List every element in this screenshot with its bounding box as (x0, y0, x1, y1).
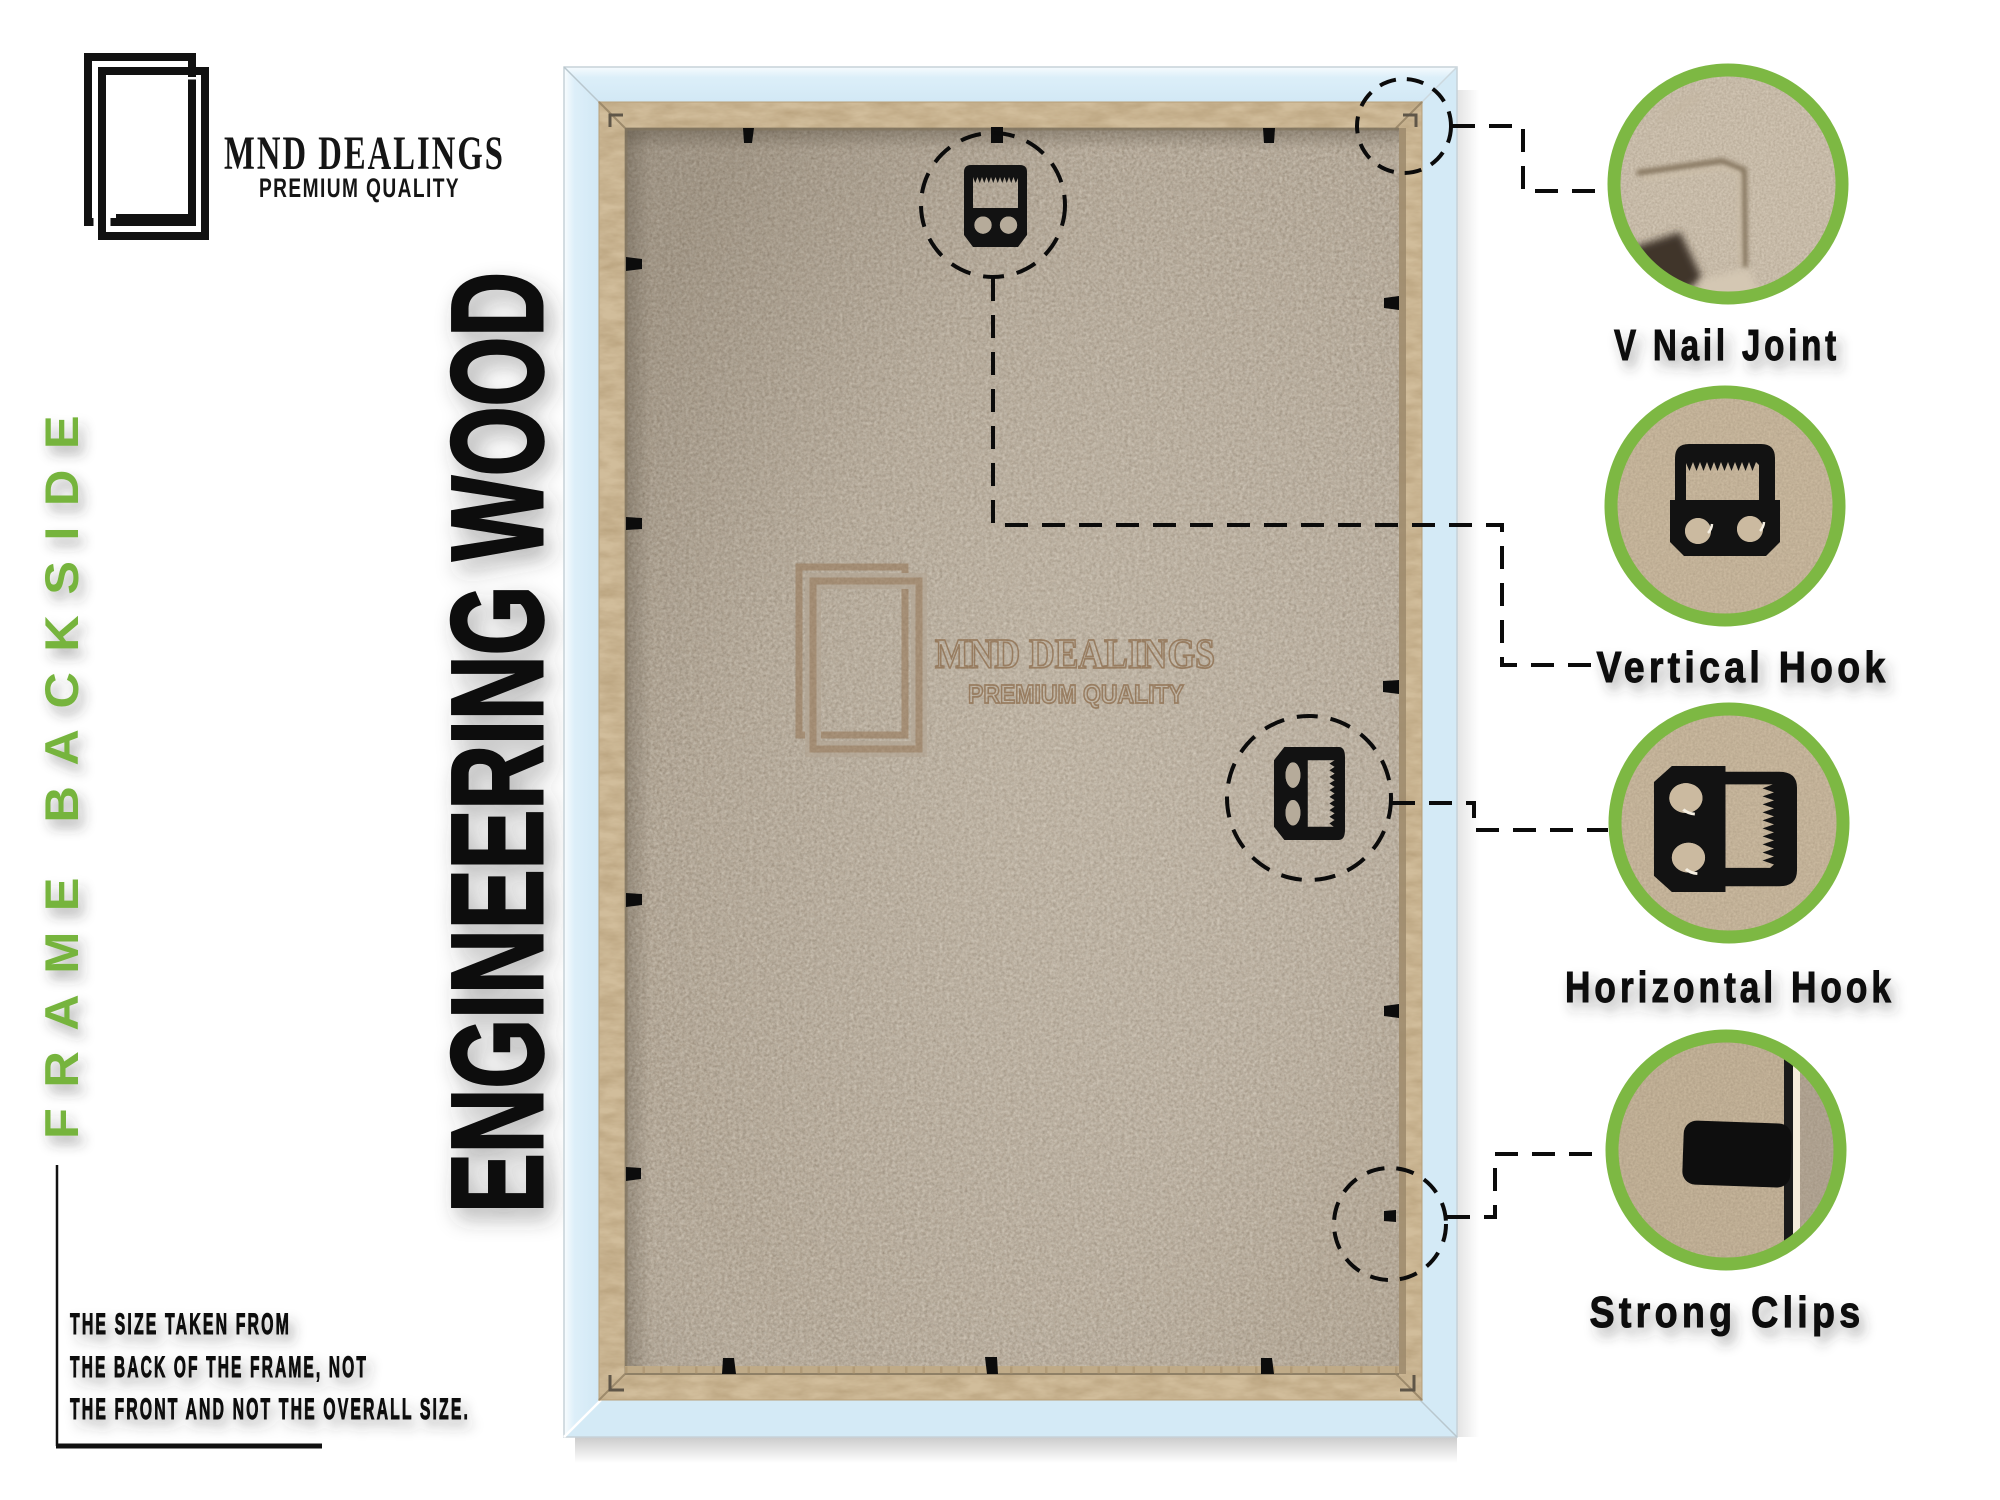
svg-text:THE FRONT AND NOT THE OVERALL: THE FRONT AND NOT THE OVERALL SIZE. (70, 1393, 470, 1426)
svg-text:PREMIUM QUALITY: PREMIUM QUALITY (259, 173, 460, 203)
svg-text:MND DEALINGS: MND DEALINGS (935, 632, 1215, 678)
svg-text:FRAME BACKSIDE: FRAME BACKSIDE (35, 395, 88, 1139)
svg-text:PREMIUM QUALITY: PREMIUM QUALITY (968, 679, 1184, 709)
svg-text:V Nail Joint: V Nail Joint (1614, 321, 1840, 370)
svg-text:THE SIZE TAKEN FROM: THE SIZE TAKEN FROM (70, 1308, 291, 1341)
svg-text:THE BACK OF THE FRAME, NOT: THE BACK OF THE FRAME, NOT (70, 1351, 368, 1384)
svg-text:ENGINEERING WOOD: ENGINEERING WOOD (424, 272, 570, 1213)
svg-text:Horizontal Hook: Horizontal Hook (1565, 963, 1895, 1012)
svg-text:Vertical Hook: Vertical Hook (1597, 643, 1890, 692)
svg-text:Strong Clips: Strong Clips (1590, 1288, 1865, 1337)
